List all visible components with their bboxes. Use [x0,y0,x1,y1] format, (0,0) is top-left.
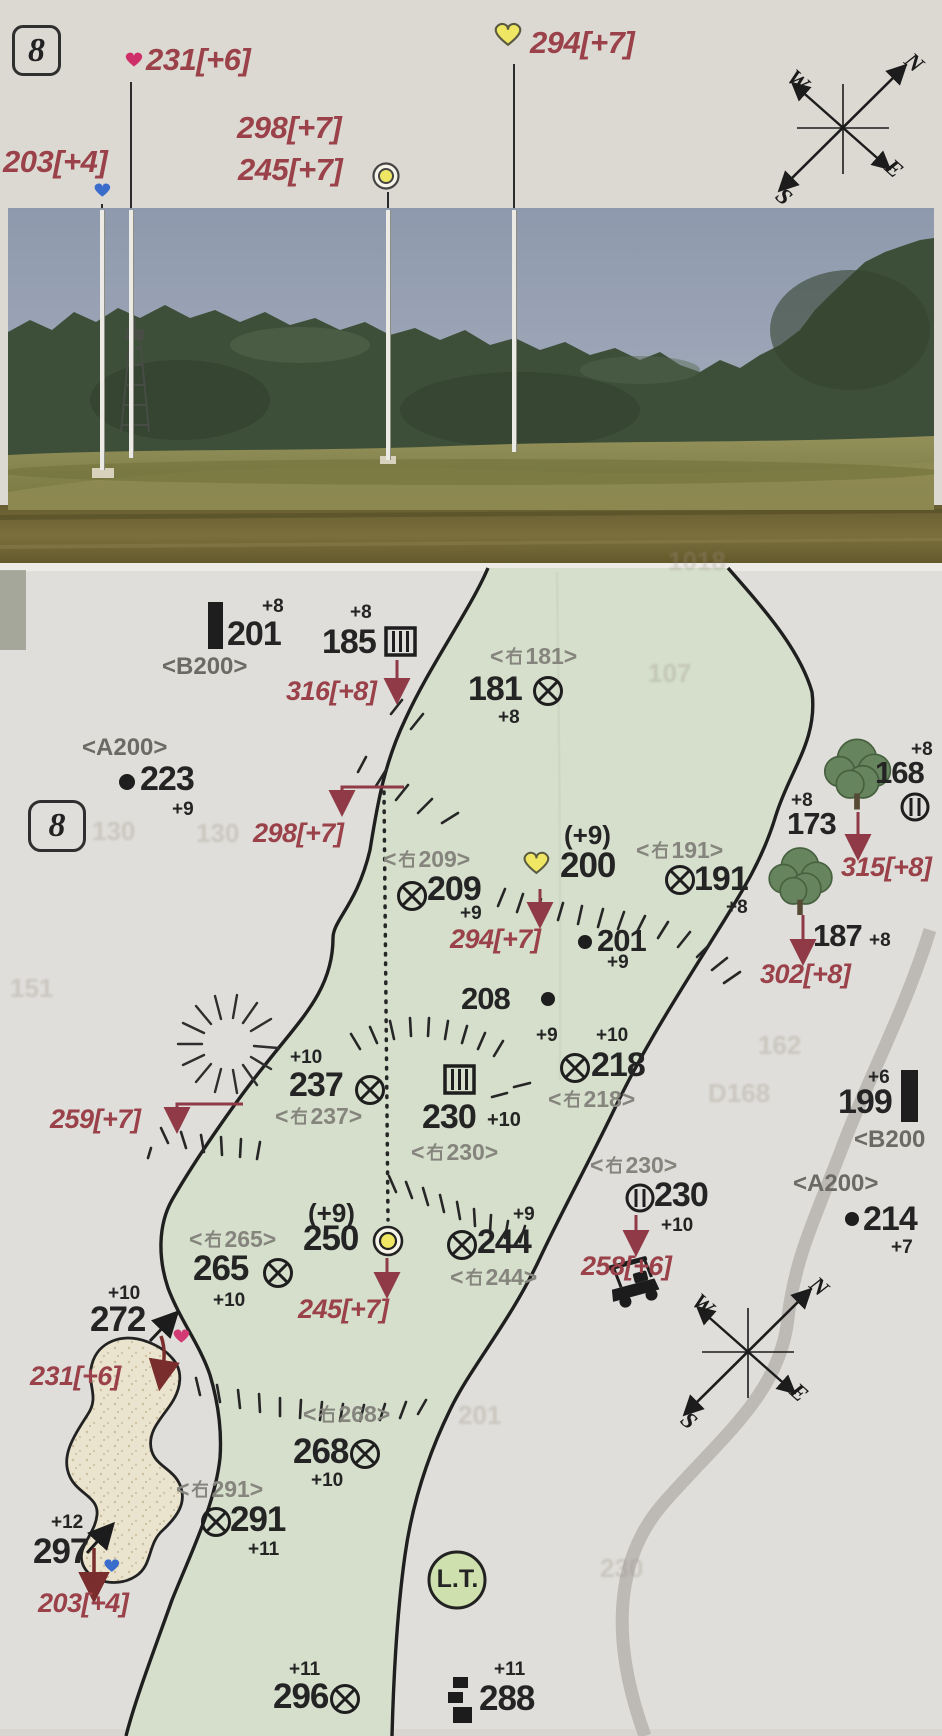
ghost-label: 151 [10,975,53,1001]
elev-191: +8 [726,898,748,917]
elev-291: +11 [248,1540,279,1559]
yardage-230: 230 [422,1100,476,1134]
carry-298: 298[+7] [253,820,343,847]
bar-icon [208,602,223,649]
yardage-book-page: N W E S [0,0,942,1736]
elev-200: (+9) [564,822,611,848]
yardage-201: 201 [227,617,281,651]
carry-315: 315[+8] [841,854,931,881]
elev-218: +10 [596,1026,628,1045]
right-ref-218: <218> [548,1088,635,1111]
yardage-173: 173 [787,808,836,839]
right-ref-237: <237> [275,1105,362,1128]
flag-label-298: 298[+7] [237,112,341,143]
elev-288: +11 [494,1660,525,1679]
yardage-200: 200 [560,848,615,883]
flag-label-245: 245[+7] [238,154,342,185]
ref-num: 181> [525,643,577,669]
yardage-237: 237 [289,1068,343,1102]
yellow-circle-icon [374,164,399,189]
elev-268: +10 [311,1471,343,1490]
right-ref-291: <291> [176,1478,263,1501]
yardage-185: 185 [322,625,376,659]
hole-number-badge-map: 8 [28,800,86,852]
dot-icon [119,774,135,790]
yardage-218: 218 [591,1048,645,1082]
yardage-223: 223 [140,762,194,796]
carry-302: 302[+8] [760,961,850,988]
dot-icon [845,1212,859,1226]
carry-203: 203[+4] [38,1590,128,1617]
yardage-214: 214 [863,1202,917,1236]
yardage-199: 199 [838,1085,892,1119]
kanji-right-icon [604,1155,624,1175]
elev-230r: +10 [661,1216,693,1235]
tee-view-photo [0,208,940,510]
elev-181: +8 [498,708,520,727]
elev-208: +9 [536,1026,558,1045]
elev-230: +10 [487,1110,521,1130]
ghost-label: 230 [600,1555,643,1581]
dot-icon [578,935,592,949]
kanji-right-icon [289,1106,309,1126]
carry-316: 316[+8] [286,678,376,705]
ref-b200r: <B200 [854,1128,925,1152]
ref-a200: <A200> [82,736,167,760]
right-ref-244: <244> [450,1266,537,1289]
kanji-right-icon [190,1479,210,1499]
yellow-circle-icon [374,1227,402,1255]
elev-265: +10 [213,1291,245,1310]
yardage-191: 191 [694,862,748,896]
kanji-right-icon [203,1229,223,1249]
right-ref-209: <209> [383,848,470,871]
right-ref-191: <191> [636,839,723,862]
right-ref-230r: <230> [590,1154,677,1177]
lt-bracket: < [490,643,503,669]
page-graphics: N W E S [0,0,942,1736]
hole-number-badge: 8 [12,25,61,76]
yardage-291: 291 [230,1502,285,1537]
kanji-right-icon [317,1404,337,1424]
yardage-187: 187 [813,920,862,951]
carry-245: 245[+7] [298,1296,388,1323]
ghost-label: 162 [758,1032,801,1058]
carry-294: 294[+7] [450,926,540,953]
yardage-265: 265 [193,1251,248,1286]
ghost-label: 107 [648,660,691,686]
ref-b200: <B200> [162,655,247,679]
elev-297: +12 [51,1513,83,1532]
yardage-296: 296 [273,1679,328,1714]
carry-259: 259[+7] [50,1106,140,1133]
yardage-230r: 230 [654,1178,708,1212]
flag-label-294: 294[+7] [530,27,634,58]
yardage-272: 272 [90,1302,145,1337]
yardage-297: 297 [33,1534,88,1569]
bar-icon [901,1070,918,1122]
yardage-168: 168 [875,757,924,788]
hole-number: 8 [49,807,66,845]
ghost-label: 130 [196,820,239,846]
kanji-right-icon [562,1089,582,1109]
flag-label-231: 231[+6] [146,44,250,75]
map-page-edge [0,563,942,572]
flag-label-203: 203[+4] [3,146,107,177]
ghost-label: D168 [708,1080,770,1106]
elev-201: +8 [262,597,284,616]
yardage-209: 209 [427,872,481,906]
right-ref-265: <265> [189,1228,276,1251]
right-ref-268: <268> [303,1403,390,1426]
hole-number: 8 [28,32,45,70]
kanji-right-icon [397,849,417,869]
dot-icon [541,992,555,1006]
elev-209: +9 [460,904,482,923]
kanji-right-icon [464,1267,484,1287]
elev-244: +9 [513,1205,535,1224]
yardage-208: 208 [461,983,510,1014]
kanji-right-icon [650,840,670,860]
ghost-label: 201 [458,1402,501,1428]
carry-258: 258[+6] [581,1253,671,1280]
kanji-right-icon [504,646,524,666]
elev-223: +9 [172,800,194,819]
lt-marker-label: L.T. [429,1567,486,1592]
yardage-244: 244 [477,1225,531,1259]
ghost-label: 1018 [668,548,726,574]
carry-231: 231[+6] [30,1363,120,1390]
elev-201b: +9 [607,953,629,972]
yardage-268: 268 [293,1434,348,1469]
elev-185: +8 [350,603,372,622]
yardage-250: 250 [303,1221,358,1256]
right-ref-230: <230> [411,1141,498,1164]
elev-214: +7 [891,1238,913,1257]
right-ref-181: <181> [490,645,577,668]
ref-a200r: <A200> [793,1172,878,1196]
kanji-right-icon [425,1142,445,1162]
yardage-181: 181 [468,672,522,706]
yardage-288: 288 [479,1681,534,1716]
elev-237: +10 [290,1048,322,1067]
ghost-label: 130 [92,818,135,844]
elev-187: +8 [869,931,891,950]
